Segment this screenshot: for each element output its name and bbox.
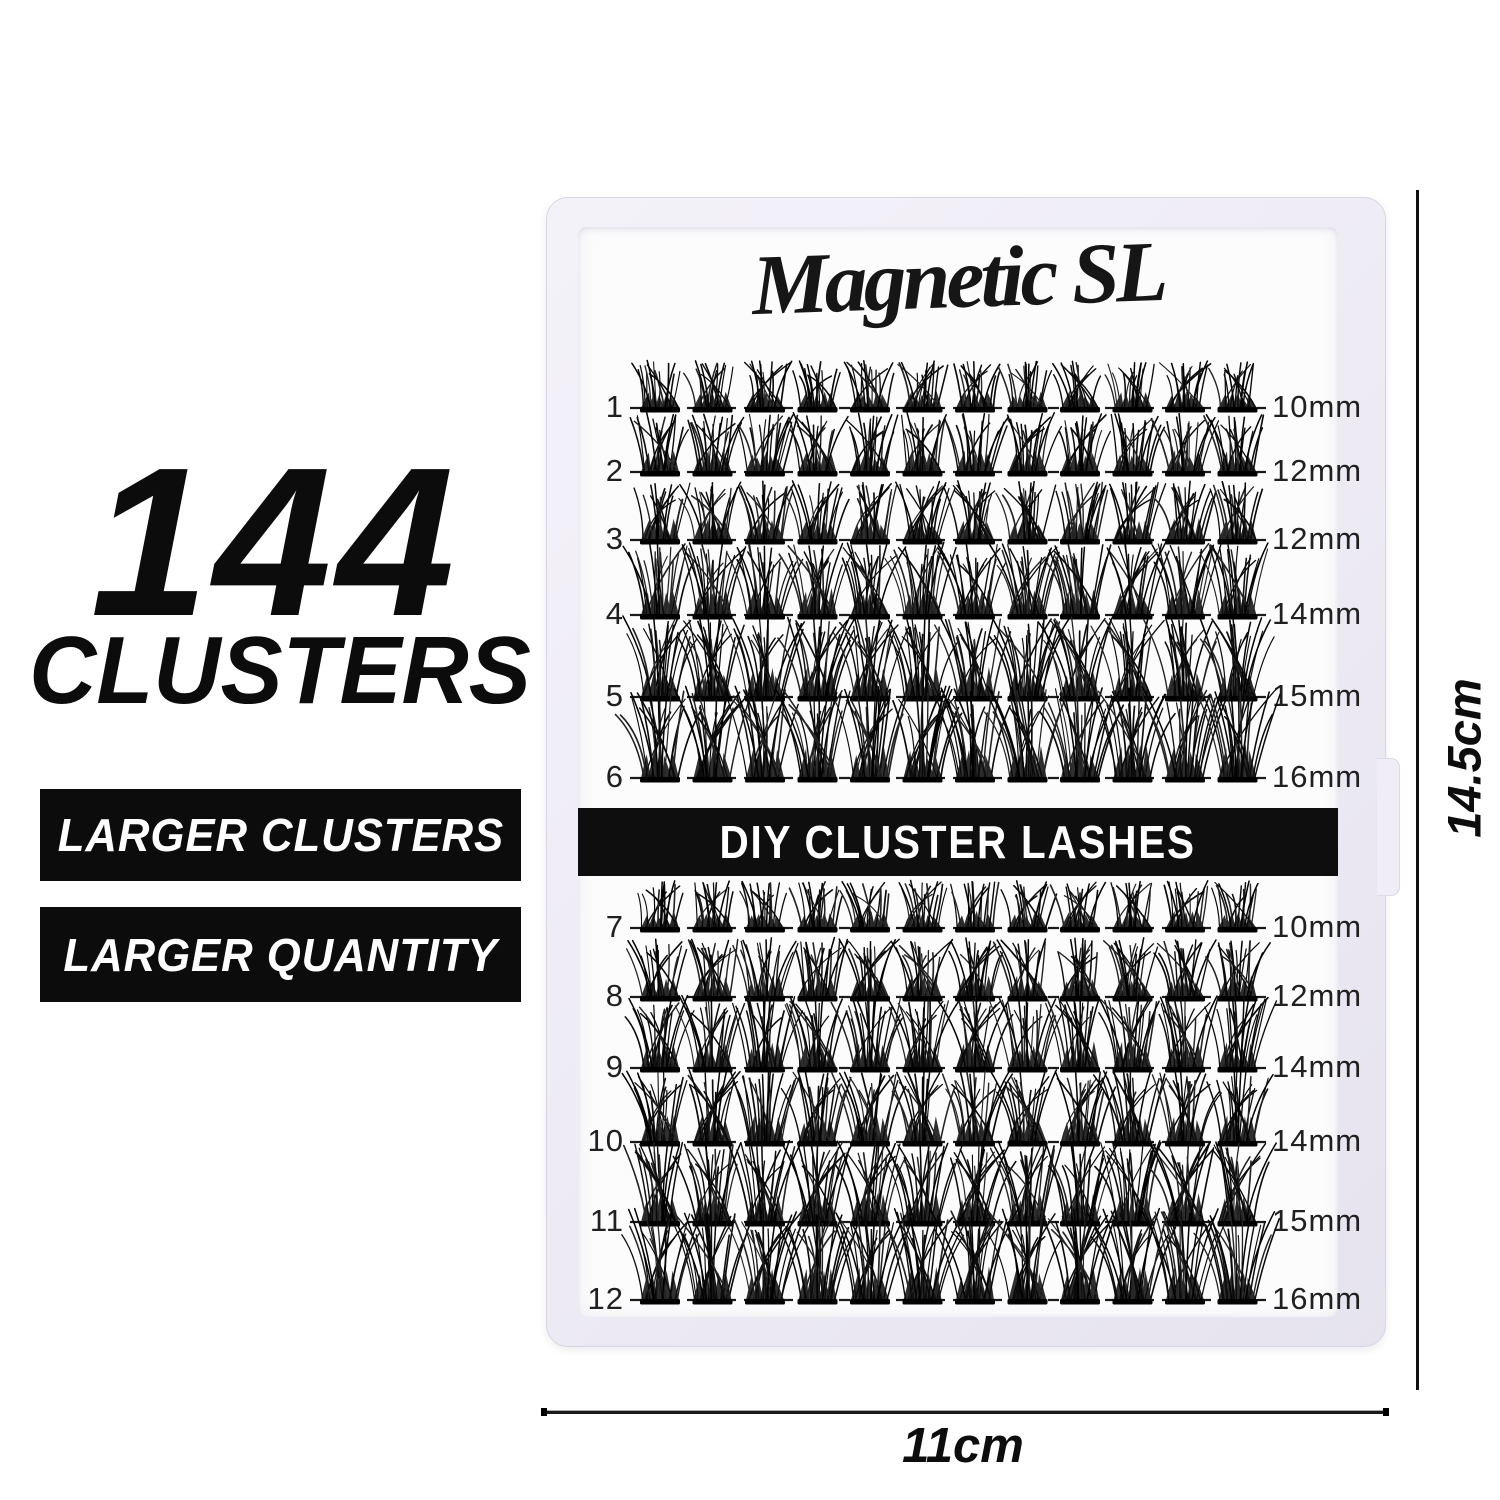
lash-cluster-row [578,1209,1338,1308]
badge-larger-quantity: LARGER QUANTITY [40,907,521,1002]
row-length-label: 16mm [1272,756,1362,798]
lash-cluster-row [578,994,1338,1076]
lash-cluster-row [578,541,1338,623]
banner-label: DIY CLUSTER LASHES [720,815,1196,869]
width-measure-cap-left [541,1408,547,1416]
lash-tray-tab [1377,758,1400,896]
height-measure-line [1416,190,1419,1390]
diy-cluster-lashes-banner: DIY CLUSTER LASHES [578,808,1338,876]
lash-cluster-row [578,1068,1338,1150]
product-image: 144 CLUSTERS LARGER CLUSTERS LARGER QUAN… [0,0,1500,1500]
row-length-label: 16mm [1272,1278,1362,1320]
lash-cluster-row [578,358,1338,416]
lash-cluster-row [578,479,1338,548]
width-measure-cap-right [1383,1408,1389,1416]
badge-larger-clusters: LARGER CLUSTERS [40,789,521,881]
headline-label: CLUSTERS [20,618,540,724]
badge-larger-clusters-label: LARGER CLUSTERS [57,808,503,862]
width-measure-line [544,1410,1386,1414]
lash-cluster-row [578,878,1338,936]
badge-larger-quantity-label: LARGER QUANTITY [63,928,497,982]
height-measure-label: 14.5cm [1437,678,1492,837]
lash-cluster-row [578,411,1338,480]
width-measure-label: 11cm [902,1418,1024,1474]
lash-cluster-row [578,687,1338,786]
